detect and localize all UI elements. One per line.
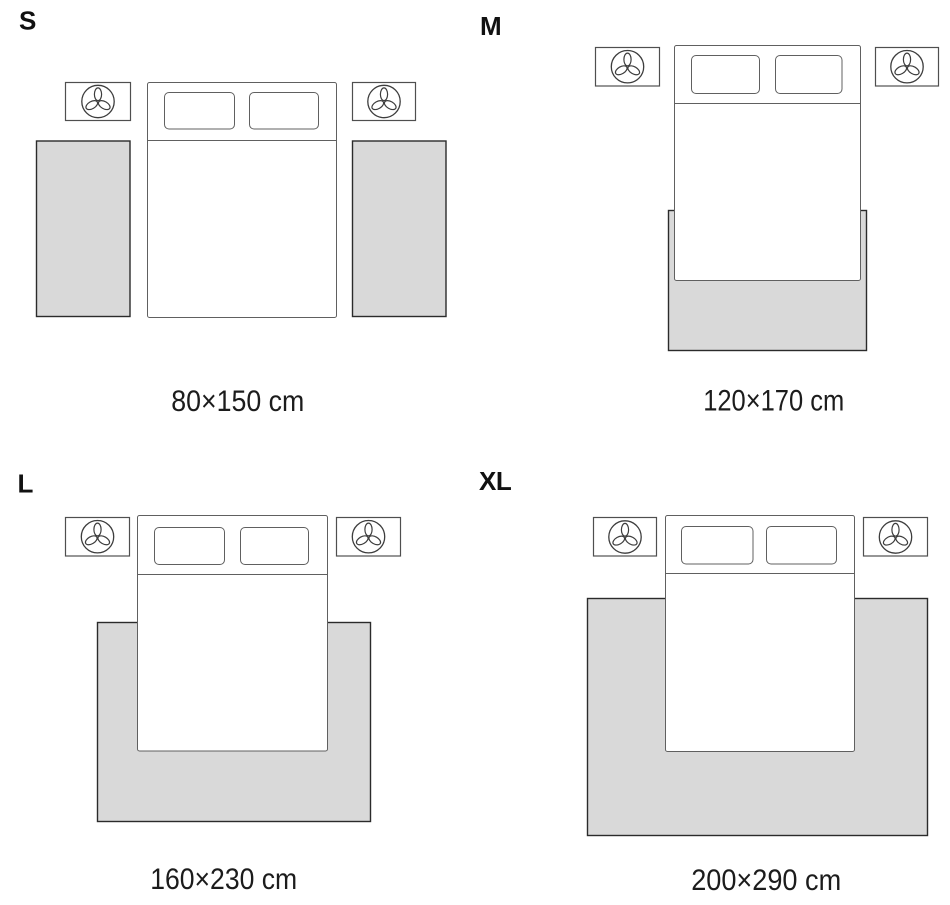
svg-text:80×150 cm: 80×150 cm	[171, 385, 304, 418]
svg-text:L: L	[18, 469, 34, 499]
svg-text:S: S	[19, 6, 36, 36]
svg-text:160×230 cm: 160×230 cm	[150, 863, 297, 896]
svg-text:200×290 cm: 200×290 cm	[691, 864, 841, 897]
svg-text:120×170 cm: 120×170 cm	[703, 385, 844, 418]
svg-text:M: M	[480, 11, 501, 41]
svg-text:XL: XL	[479, 466, 512, 496]
